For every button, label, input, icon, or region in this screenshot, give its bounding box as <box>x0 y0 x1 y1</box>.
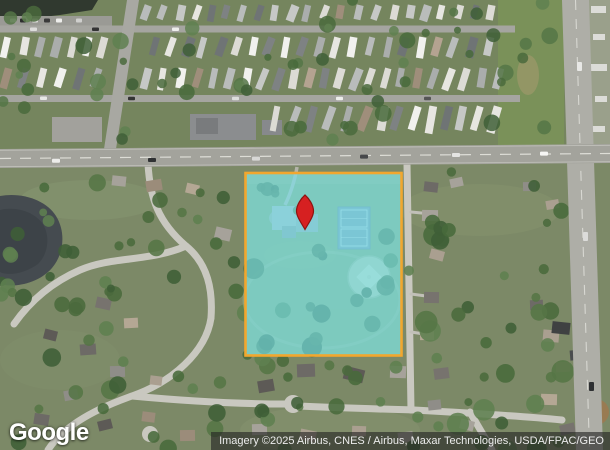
parcel <box>243 167 401 357</box>
mobile-home-park <box>0 0 610 150</box>
park-road-lower <box>0 95 520 102</box>
parcel-highlight-overlay[interactable] <box>246 173 402 356</box>
attribution-text: Imagery ©2025 Airbus, CNES / Airbus, Max… <box>219 432 604 450</box>
google-logo[interactable]: Google <box>9 419 89 447</box>
park-road-upper <box>0 26 515 33</box>
map-viewport[interactable]: Google Imagery ©2025 Airbus, CNES / Airb… <box>0 0 610 450</box>
satellite-map[interactable] <box>0 0 610 450</box>
map-attribution-bar: Imagery ©2025 Airbus, CNES / Airbus, Max… <box>211 432 610 450</box>
